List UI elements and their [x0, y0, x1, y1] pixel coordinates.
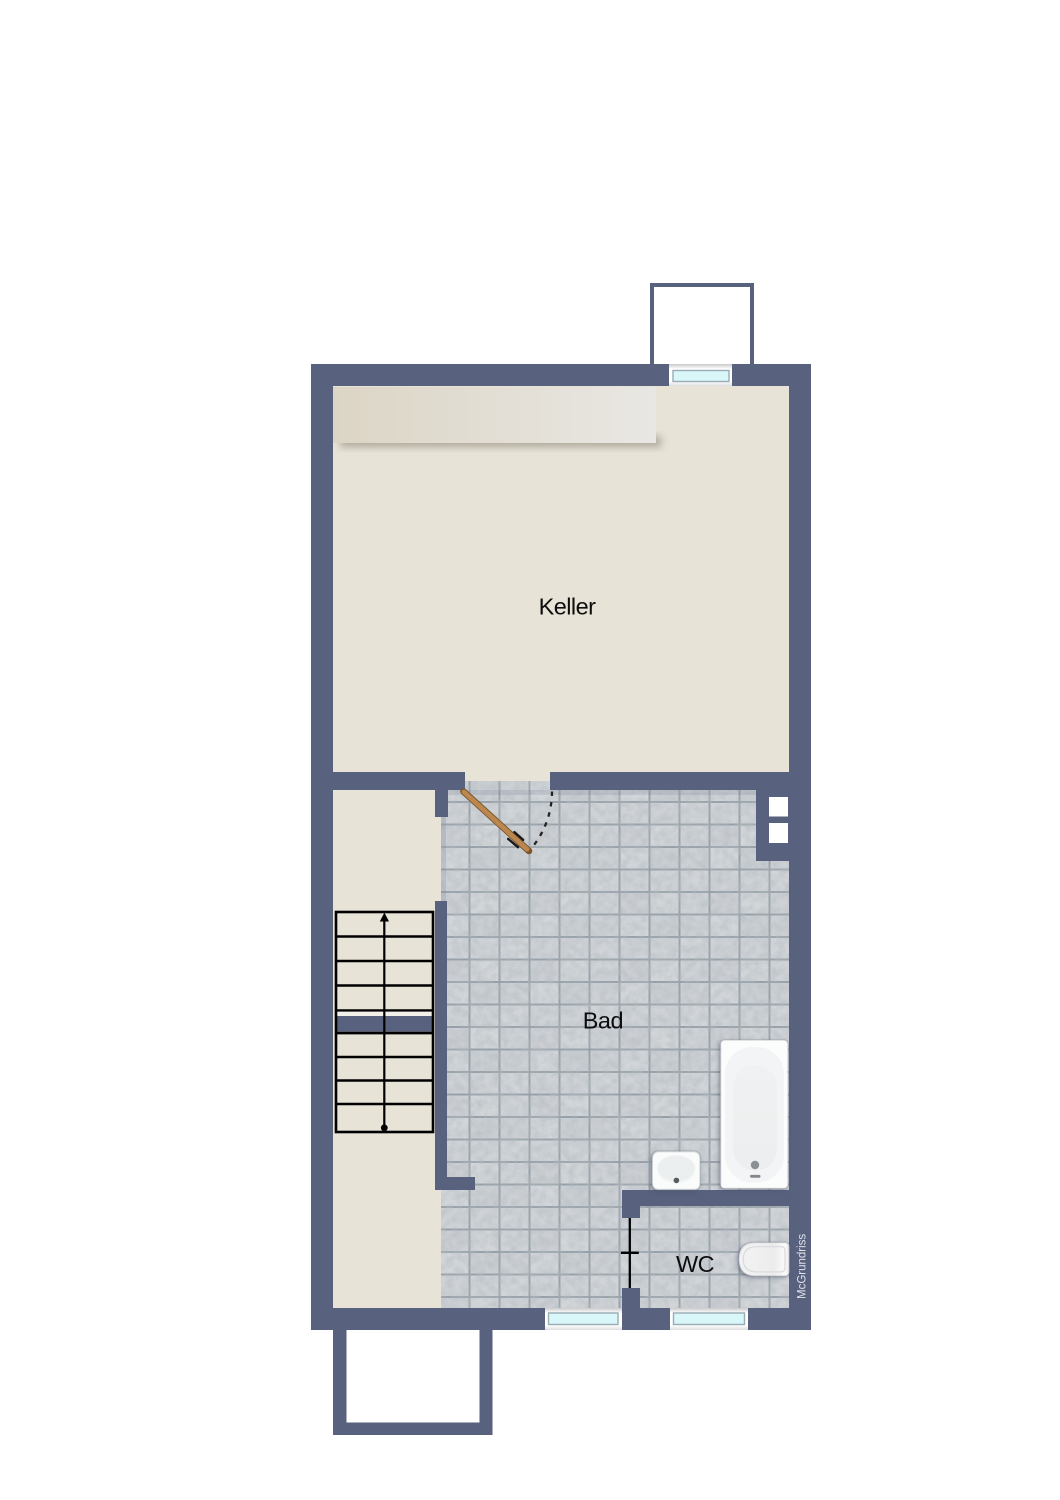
svg-text:WC: WC: [676, 1251, 715, 1277]
svg-text:Keller: Keller: [539, 594, 597, 620]
svg-text:Bad: Bad: [583, 1007, 623, 1033]
svg-text:McGrundriss: McGrundriss: [797, 1234, 809, 1299]
